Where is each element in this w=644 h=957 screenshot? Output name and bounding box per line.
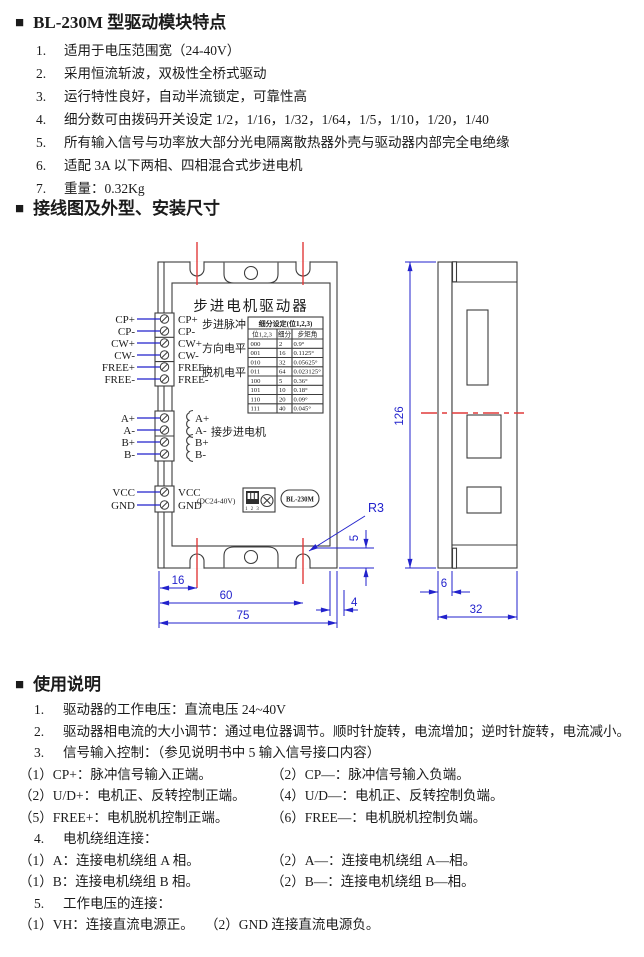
usage-line-number: 4. [34, 828, 63, 850]
usage-line: 4.电机绕组连接： [0, 828, 644, 850]
table-cell: 0.09° [294, 396, 309, 403]
usage-line: （2）U/D+：电机正、反转控制正端。（4）U/D—：电机正、反转控制负端。 [0, 785, 644, 807]
usage-line-left: （1）VH：连接直流电源正。 [19, 914, 205, 936]
usage-list: 1.驱动器的工作电压：直流电压 24~40V2.驱动器相电流的大小调节：通过电位… [0, 699, 644, 936]
usage-line-text: 电机绕组连接： [63, 831, 158, 846]
side-view [438, 262, 517, 568]
feature-item-number: 6. [36, 154, 64, 177]
feature-item-text: 适用于电压范围宽（24-40V） [64, 43, 240, 58]
terminal-label-inner: GND [178, 500, 202, 512]
table-cell: 010 [251, 359, 262, 366]
feature-item: 2.采用恒流斩波，双极性全桥式驱动 [0, 62, 644, 85]
dim-r3: R3 [368, 501, 384, 515]
terminal-label-outer: B+ [121, 437, 135, 449]
features-list: 1.适用于电压范围宽（24-40V）2.采用恒流斩波，双极性全桥式驱动3.运行特… [0, 39, 644, 200]
usage-section-title: ■使用说明 [15, 670, 101, 695]
table-cell: 64 [279, 369, 286, 376]
usage-line-text: 信号输入控制：（参见说明书中 5 输入信号接口内容） [63, 745, 380, 760]
terminal-label-inner: CW- [178, 350, 199, 362]
feature-item-text: 适配 3A 以下两相、四相混合式步进电机 [64, 158, 303, 173]
usage-line-left: （2）U/D+：电机正、反转控制正端。 [19, 785, 271, 807]
features-section-title: ■BL-230M 型驱动模块特点 [15, 8, 226, 33]
feature-item: 3.运行特性良好，自动半流锁定，可靠性高 [0, 85, 644, 108]
usage-line-right: （2）GND 连接直流电源负。 [205, 917, 379, 932]
table-cell: 000 [251, 341, 262, 348]
usage-line: （1）VH：连接直流电源正。（2）GND 连接直流电源负。 [0, 914, 644, 936]
usage-line-right: （2）B—：连接电机绕组 B—相。 [271, 874, 475, 889]
feature-item-text: 采用恒流斩波，双极性全桥式驱动 [64, 66, 267, 81]
dim-4: 4 [351, 597, 358, 609]
usage-line-left: （1）CP+：脉冲信号输入正端。 [19, 764, 271, 786]
terminal-label-inner: B- [195, 449, 206, 461]
dim-5: 5 [349, 535, 361, 541]
usage-line-number: 3. [34, 742, 63, 764]
table-cell: 001 [251, 350, 261, 357]
wiring-dimension-diagram: 步进电机驱动器 步进脉冲 方向电平 脱机电平 接步进电机 (DC24-40V) … [0, 228, 644, 638]
usage-line-text: 驱动器的工作电压：直流电压 24~40V [63, 702, 286, 717]
table-header: 步矩角 [298, 330, 318, 339]
table-cell: 101 [251, 387, 261, 394]
terminal-label-inner: CP+ [178, 314, 198, 326]
terminal-label-inner: FREE+ [178, 362, 211, 374]
usage-line: 2.驱动器相电流的大小调节：通过电位器调节。顺时针旋转，电流增加；逆时针旋转，电… [0, 721, 644, 743]
terminal-label-outer: VCC [112, 487, 135, 499]
usage-line-left: （1）A：连接电机绕组 A 相。 [19, 850, 271, 872]
usage-line-text: 工作电压的连接： [63, 896, 171, 911]
usage-title-text: 使用说明 [33, 675, 101, 694]
terminal-label-outer: A- [123, 425, 135, 437]
table-cell: 011 [251, 369, 261, 376]
table-cell: 0.18° [294, 387, 309, 394]
table-cell: 40 [279, 406, 286, 413]
terminal-label-inner: CW+ [178, 338, 202, 350]
dim-126: 126 [394, 406, 406, 425]
motor-group-label: 接步进电机 [211, 425, 266, 439]
feature-item-number: 3. [36, 85, 64, 108]
terminal-label-inner: B+ [195, 437, 209, 449]
usage-line-right: （2）A—：连接电机绕组 A—相。 [271, 853, 476, 868]
table-cell: 111 [251, 406, 260, 413]
usage-line-number: 5. [34, 893, 63, 915]
feature-item-number: 5. [36, 131, 64, 154]
feature-item-number: 2. [36, 62, 64, 85]
signal-group-label: 方向电平 [202, 341, 246, 355]
table-title: 细分设定(位1,2,3) [259, 319, 313, 328]
terminal-label-inner: VCC [178, 487, 201, 499]
feature-item: 6.适配 3A 以下两相、四相混合式步进电机 [0, 154, 644, 177]
feature-item-text: 细分数可由拨码开关设定 1/2，1/16，1/32，1/64，1/5，1/10，… [64, 112, 489, 127]
terminal-label-outer: CP- [118, 326, 135, 338]
dim-75: 75 [237, 610, 250, 622]
terminal-label-outer: A+ [121, 413, 135, 425]
terminal-label-outer: CP+ [115, 314, 135, 326]
dim-32: 32 [470, 604, 483, 616]
power-note: (DC24-40V) [197, 497, 236, 506]
features-title-text: BL-230M 型驱动模块特点 [33, 13, 226, 32]
usage-line: （1）B：连接电机绕组 B 相。（2）B—：连接电机绕组 B—相。 [0, 871, 644, 893]
usage-line: （1）CP+：脉冲信号输入正端。（2）CP—：脉冲信号输入负端。 [0, 764, 644, 786]
usage-line: （1）A：连接电机绕组 A 相。（2）A—：连接电机绕组 A—相。 [0, 850, 644, 872]
usage-line: 5.工作电压的连接： [0, 893, 644, 915]
model-badge-label: BL-230M [286, 497, 315, 504]
table-header: 位1,2,3 [252, 330, 272, 339]
terminal-label-inner: A- [195, 425, 207, 437]
usage-line: 3.信号输入控制：（参见说明书中 5 输入信号接口内容） [0, 742, 644, 764]
feature-item-number: 1. [36, 39, 64, 62]
table-cell: 32 [279, 359, 286, 366]
terminal-label-inner: A+ [195, 413, 209, 425]
section-marker-icon: ■ [15, 15, 24, 31]
feature-item-text: 所有输入信号与功率放大部分光电隔离散热器外壳与驱动器内部完全电绝缘 [64, 135, 510, 150]
table-header: 细分 [278, 330, 292, 339]
usage-line-text: 驱动器相电流的大小调节：通过电位器调节。顺时针旋转，电流增加；逆时针旋转，电流减… [63, 724, 630, 739]
wiring-diagram-area: 步进电机驱动器 步进脉冲 方向电平 脱机电平 接步进电机 (DC24-40V) … [0, 228, 644, 638]
dip-switch-numbers: 1 2 3 [245, 507, 260, 512]
section-marker-icon: ■ [15, 677, 24, 693]
table-cell: 0.9° [294, 341, 305, 348]
device-title: 步进电机驱动器 [193, 298, 309, 315]
usage-line: 1.驱动器的工作电压：直流电压 24~40V [0, 699, 644, 721]
signal-group-label: 步进脉冲 [202, 317, 246, 331]
terminal-label-outer: FREE+ [102, 362, 135, 374]
table-cell: 0.1125° [294, 350, 315, 357]
table-cell: 20 [279, 396, 286, 403]
terminal-label-inner: FREE- [178, 374, 209, 386]
usage-line-number: 1. [34, 699, 63, 721]
terminal-label-outer: CW+ [111, 338, 135, 350]
feature-item: 4.细分数可由拨码开关设定 1/2，1/16，1/32，1/64，1/5，1/1… [0, 108, 644, 131]
usage-line-left: （1）B：连接电机绕组 B 相。 [19, 871, 271, 893]
table-cell: 0.023125° [294, 369, 322, 376]
feature-item-text: 运行特性良好，自动半流锁定，可靠性高 [64, 89, 307, 104]
mounting-hole-icon [245, 551, 258, 564]
table-cell: 2 [279, 341, 282, 348]
wiring-title-text: 接线图及外型、安装尺寸 [33, 199, 220, 218]
table-cell: 10 [279, 387, 286, 394]
terminal-label-outer: FREE- [104, 374, 135, 386]
feature-item: 1.适用于电压范围宽（24-40V） [0, 39, 644, 62]
dim-6: 6 [441, 578, 447, 590]
usage-line-right: （2）CP—：脉冲信号输入负端。 [271, 767, 470, 782]
terminal-label-outer: GND [111, 500, 135, 512]
heatsink-plate-outline [438, 262, 452, 568]
terminal-label-outer: CW- [114, 350, 135, 362]
terminal-label-outer: B- [124, 449, 135, 461]
terminal-label-inner: CP- [178, 326, 195, 338]
usage-line: （5）FREE+：电机脱机控制正端。（6）FREE—：电机脱机控制负端。 [0, 807, 644, 829]
table-cell: 0.36° [294, 378, 309, 385]
feature-item-number: 4. [36, 108, 64, 131]
section-marker-icon: ■ [15, 201, 24, 217]
usage-line-right: （4）U/D—：电机正、反转控制负端。 [271, 788, 504, 803]
dim-16: 16 [172, 575, 185, 587]
table-cell: 0.045° [294, 406, 312, 413]
dim-60: 60 [220, 590, 233, 602]
usage-line-number: 2. [34, 721, 63, 743]
mounting-hole-icon [245, 267, 258, 280]
table-cell: 100 [251, 378, 262, 385]
wiring-section-title: ■接线图及外型、安装尺寸 [15, 194, 220, 219]
table-cell: 16 [279, 350, 286, 357]
feature-item: 5.所有输入信号与功率放大部分光电隔离散热器外壳与驱动器内部完全电绝缘 [0, 131, 644, 154]
usage-line-left: （5）FREE+：电机脱机控制正端。 [19, 807, 271, 829]
table-cell: 110 [251, 396, 261, 403]
table-cell: 0.05625° [294, 359, 318, 366]
usage-line-right: （6）FREE—：电机脱机控制负端。 [271, 810, 486, 825]
